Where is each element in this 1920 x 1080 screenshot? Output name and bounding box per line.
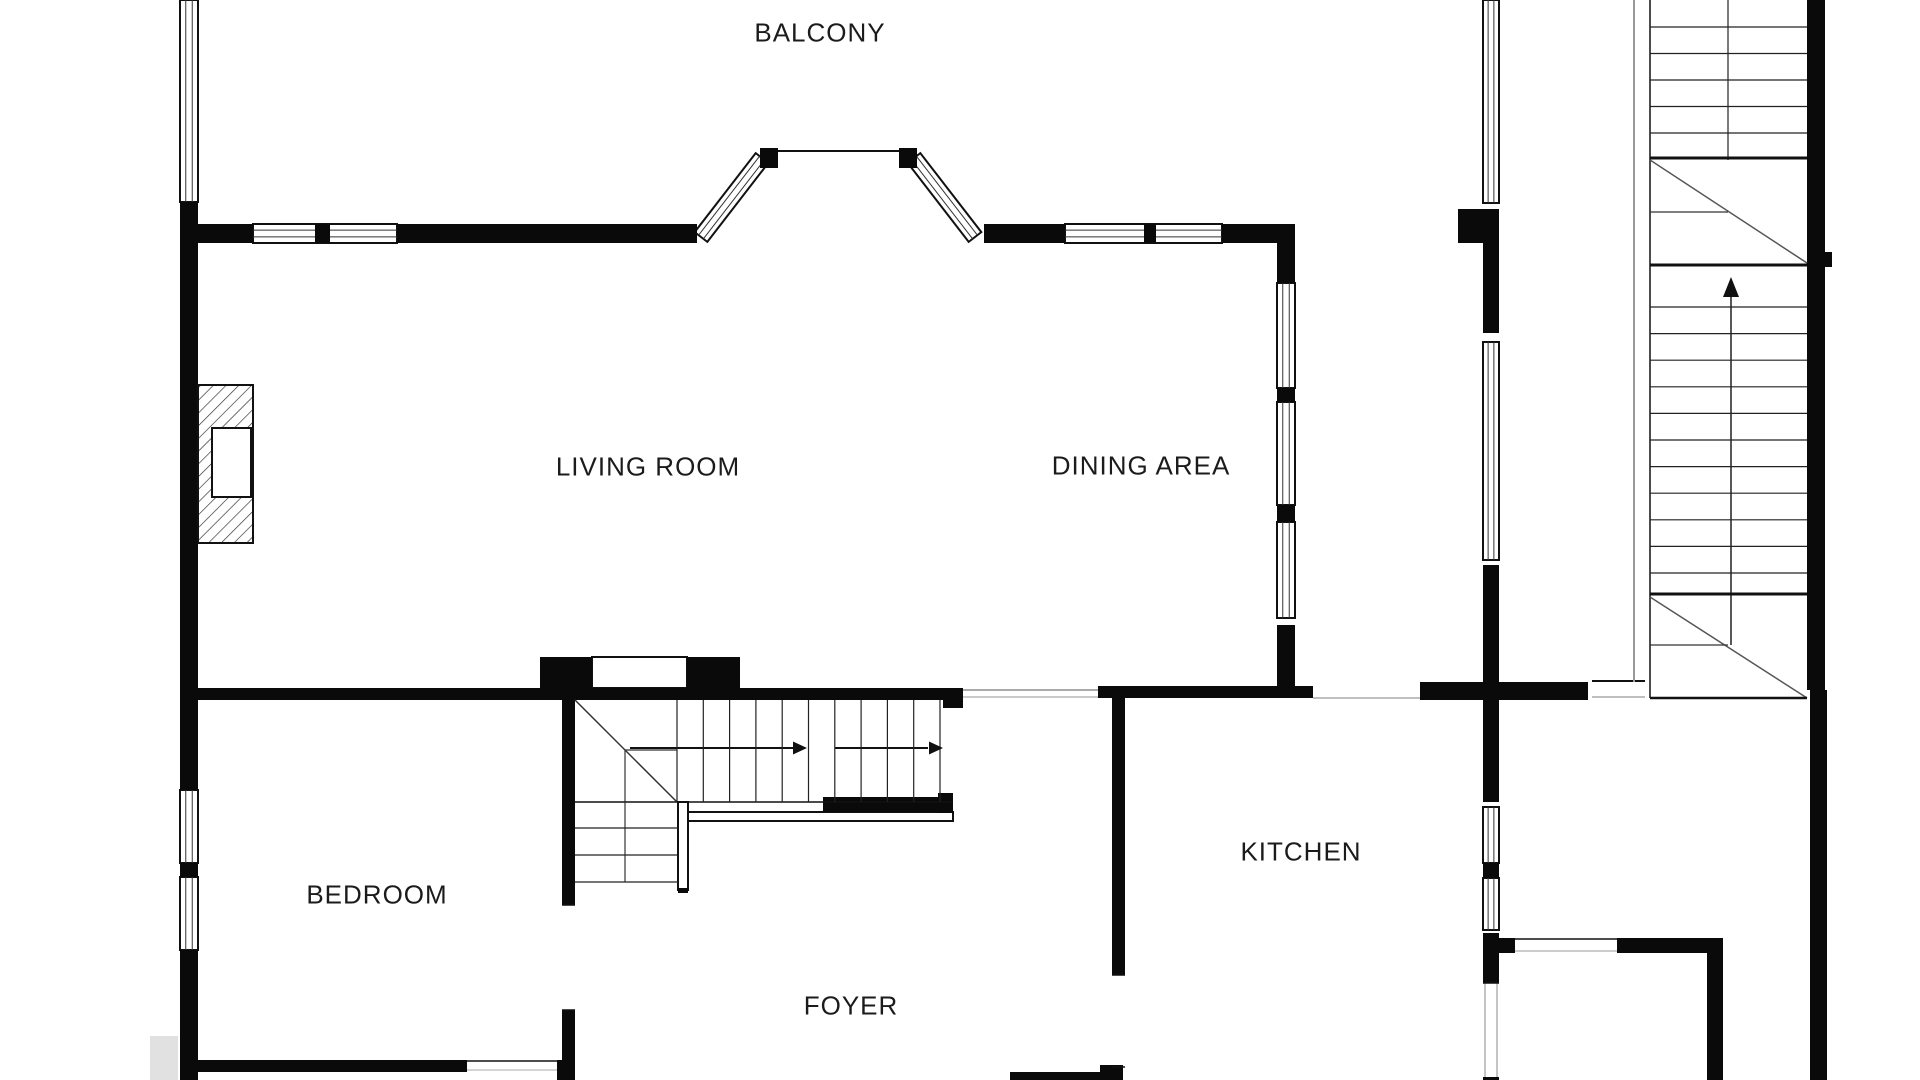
room-label-living-room: LIVING ROOM: [556, 452, 740, 483]
room-label-foyer: FOYER: [804, 991, 899, 1022]
room-label-bedroom: BEDROOM: [306, 880, 447, 911]
fireplace: [198, 385, 253, 543]
room-label-dining-area: DINING AREA: [1052, 451, 1231, 482]
floorplan-canvas: [0, 0, 1920, 1080]
plan-background: [0, 0, 1920, 1080]
scan-artifact: [150, 1036, 178, 1080]
floorplan-page: BALCONY LIVING ROOM DINING AREA BEDROOM …: [0, 0, 1920, 1080]
room-label-kitchen: KITCHEN: [1240, 837, 1361, 868]
room-label-balcony: BALCONY: [754, 18, 885, 49]
